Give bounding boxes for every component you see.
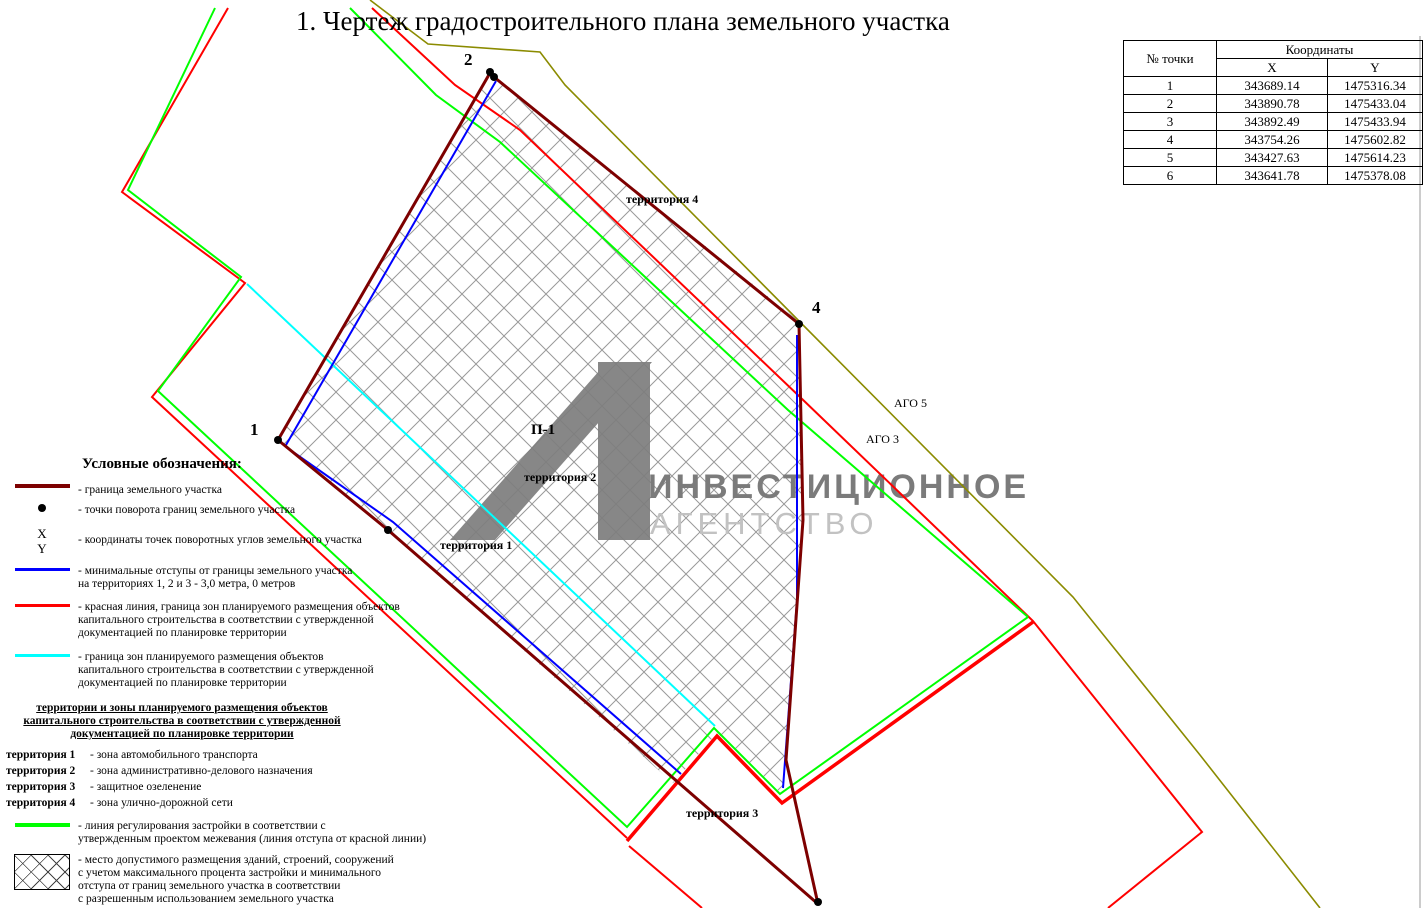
hatch-sample	[14, 854, 70, 890]
territory-text: - зона административно-делового назначен…	[90, 765, 313, 778]
xy-sample: XY	[37, 526, 46, 556]
cell-x: 343689.14	[1217, 77, 1328, 95]
offset-line-sample	[15, 568, 70, 571]
col-header-x: X	[1217, 59, 1328, 77]
territory-label: территория 1	[6, 749, 90, 762]
legend-item-turn-points: - точки поворота границ земельного участ…	[6, 504, 430, 517]
table-row: 2 343890.78 1475433.04	[1124, 95, 1423, 113]
territory-label: территория 4	[6, 797, 90, 810]
cell-x: 343427.63	[1217, 149, 1328, 167]
legend-item-label: - граница земельного участка	[78, 484, 222, 497]
col-header-group: Координаты	[1217, 41, 1423, 59]
table-row: 1 343689.14 1475316.34	[1124, 77, 1423, 95]
legend-territory-1: территория 1 - зона автомобильного транс…	[6, 749, 430, 762]
territory-3-map-label: территория 3	[686, 806, 758, 821]
cell-x: 343641.78	[1217, 167, 1328, 185]
territory-2-map-label: территория 2	[524, 470, 596, 485]
cell-point: 6	[1124, 167, 1217, 185]
cell-point: 1	[1124, 77, 1217, 95]
xy-sample-y: Y	[37, 541, 46, 556]
zone-label-p1: П-1	[531, 422, 555, 439]
watermark-line1: ИНВЕСТИЦИОННОЕ	[648, 468, 1029, 507]
territory-1-map-label: территория 1	[440, 538, 512, 553]
legend-territory-3: территория 3 - защитное озеленение	[6, 781, 430, 794]
legend-item-label: - линия регулирования застройки в соотве…	[78, 820, 426, 846]
legend-item-red-line: - красная линия, граница зон планируемог…	[6, 601, 430, 640]
cell-x: 343754.26	[1217, 131, 1328, 149]
legend-item-regulation: - линия регулирования застройки в соотве…	[6, 820, 430, 846]
legend-item-label: - красная линия, граница зон планируемог…	[78, 601, 400, 640]
legend-territory-4: территория 4 - зона улично-дорожной сети	[6, 797, 430, 810]
territory-label: территория 3	[6, 781, 90, 794]
table-row: 4 343754.26 1475602.82	[1124, 131, 1423, 149]
legend-item-label: - граница зон планируемого размещения об…	[78, 651, 374, 690]
cell-y: 1475602.82	[1328, 131, 1423, 149]
cell-y: 1475316.34	[1328, 77, 1423, 95]
legend-item-zone-border: - граница зон планируемого размещения об…	[6, 651, 430, 690]
coordinates-table: № точки Координаты X Y 1 343689.14 14753…	[1123, 40, 1423, 185]
col-header-point: № точки	[1124, 41, 1217, 77]
table-row: 3 343892.49 1475433.94	[1124, 113, 1423, 131]
territories-heading: территории и зоны планируемого размещени…	[6, 702, 358, 741]
legend-item-label: - минимальные отступы от границы земельн…	[78, 565, 352, 591]
legend: Условные обозначения: - граница земельно…	[6, 458, 430, 908]
cell-y: 1475614.23	[1328, 149, 1423, 167]
legend-item-offsets: - минимальные отступы от границы земельн…	[6, 565, 430, 591]
territory-text: - защитное озеленение	[90, 781, 201, 794]
legend-item-label: - место допустимого размещения зданий, с…	[78, 854, 394, 906]
point-label-1: 1	[250, 420, 259, 440]
legend-item-label: - координаты точек поворотных углов земе…	[78, 534, 362, 547]
point-label-2: 2	[464, 50, 473, 70]
cell-x: 343892.49	[1217, 113, 1328, 131]
drawing-canvas: ИНВЕСТИЦИОННОЕ АГЕНТСТВО	[0, 0, 1428, 908]
cell-point: 5	[1124, 149, 1217, 167]
ago-3-label: АГО 3	[866, 432, 899, 447]
cell-point: 2	[1124, 95, 1217, 113]
cell-x: 343890.78	[1217, 95, 1328, 113]
cell-y: 1475433.04	[1328, 95, 1423, 113]
red-line-sample	[15, 604, 70, 607]
turn-point-sample	[38, 504, 46, 512]
table-row: 5 343427.63 1475614.23	[1124, 149, 1423, 167]
xy-sample-x: X	[37, 526, 46, 541]
ago-5-label: АГО 5	[894, 396, 927, 411]
parcel-boundary-sample	[15, 484, 70, 488]
legend-item-xy: XY - координаты точек поворотных углов з…	[6, 526, 430, 556]
territory-label: территория 2	[6, 765, 90, 778]
point-label-4: 4	[812, 298, 821, 318]
cell-point: 3	[1124, 113, 1217, 131]
legend-item-boundary: - граница земельного участка	[6, 484, 430, 497]
territory-text: - зона улично-дорожной сети	[90, 797, 233, 810]
table-row: 6 343641.78 1475378.08	[1124, 167, 1423, 185]
cell-y: 1475433.94	[1328, 113, 1423, 131]
regulation-line-sample	[15, 823, 70, 827]
watermark-line2: АГЕНТСТВО	[650, 506, 879, 542]
territory-4-map-label: территория 4	[626, 192, 698, 207]
legend-territory-2: территория 2 - зона административно-дело…	[6, 765, 430, 778]
legend-item-label: - точки поворота границ земельного участ…	[78, 504, 295, 517]
col-header-y: Y	[1328, 59, 1423, 77]
page-title: 1. Чертеж градостроительного плана земел…	[296, 6, 950, 37]
territory-text: - зона автомобильного транспорта	[90, 749, 258, 762]
cell-point: 4	[1124, 131, 1217, 149]
legend-heading: Условные обозначения:	[82, 458, 430, 471]
cell-y: 1475378.08	[1328, 167, 1423, 185]
legend-item-placement: - место допустимого размещения зданий, с…	[6, 854, 430, 906]
zone-border-sample	[15, 654, 70, 657]
